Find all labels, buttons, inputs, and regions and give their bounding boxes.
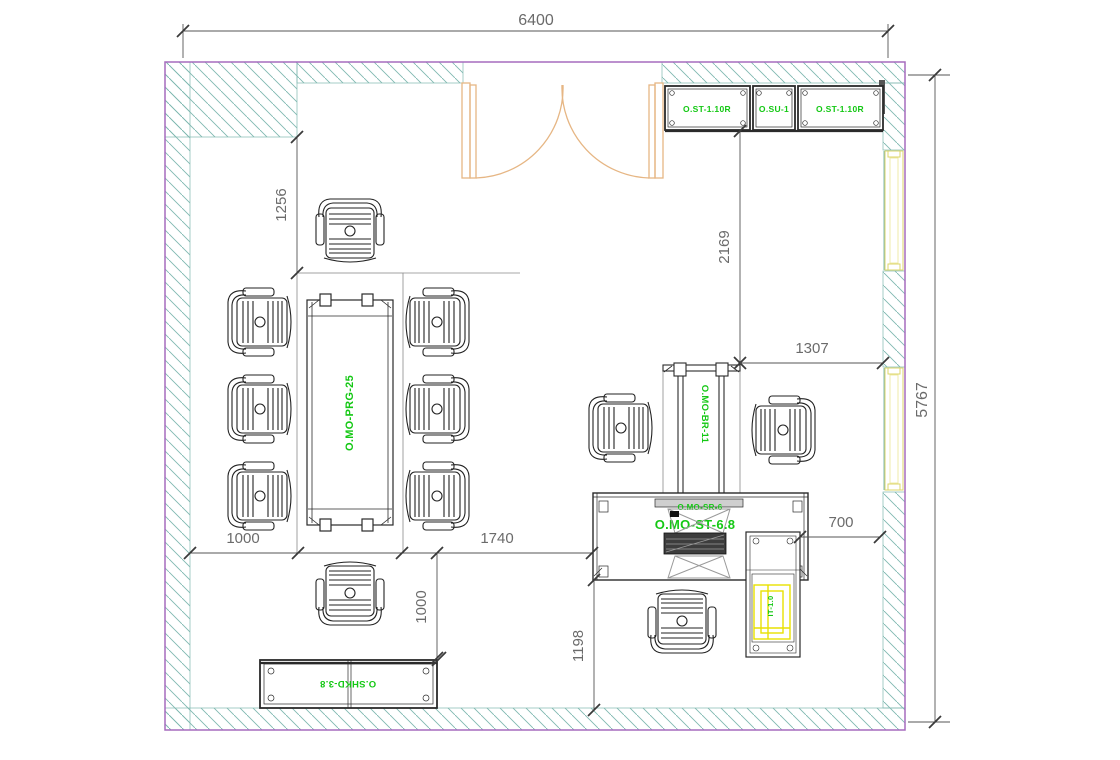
chair-icon bbox=[228, 375, 291, 443]
chair-icon bbox=[316, 199, 384, 262]
dimension-right-height: 5767 bbox=[908, 69, 950, 728]
meeting-table-zone: O.MO-BR-11 bbox=[589, 363, 815, 493]
chair-icon bbox=[406, 288, 469, 356]
dimension-desk-to-bottom: 1198 bbox=[570, 574, 600, 716]
wall-top-strip-right bbox=[662, 62, 905, 83]
door-leaf-right bbox=[649, 85, 655, 178]
dimension-center-vertical: 2169 bbox=[716, 125, 746, 369]
top-cabinets: O.ST-1.10R O.SU-1 O.ST-1.10R bbox=[665, 86, 883, 131]
pedestal: IT-1.0 bbox=[746, 532, 800, 657]
wall-top-left-block bbox=[165, 62, 297, 137]
conference-table-label: O.MO-PRG-25 bbox=[344, 375, 356, 451]
chair-icon bbox=[406, 375, 469, 443]
dim-cabinet-gap-value: 1000 bbox=[413, 590, 430, 623]
cabinet-right-label: O.ST-1.10R bbox=[816, 104, 864, 114]
wall-left bbox=[165, 62, 190, 730]
chair-icon bbox=[316, 562, 384, 625]
chair-icon bbox=[228, 462, 291, 530]
dimension-desk-to-wall: 1307 bbox=[740, 340, 889, 369]
wall-right-seg1 bbox=[883, 83, 905, 150]
double-door bbox=[462, 83, 663, 178]
it-unit-label: IT-1.0 bbox=[766, 596, 775, 617]
wall-right-seg2 bbox=[883, 271, 905, 367]
conference-zone: O.MO-PRG-25 bbox=[228, 199, 520, 625]
window-lower bbox=[884, 368, 903, 490]
wall-top-strip-left bbox=[297, 62, 463, 83]
floor-plan-canvas: O.ST-1.10R O.SU-1 O.ST-1.10R O.MO-PRG-25 bbox=[0, 0, 1120, 760]
dimension-top-width: 6400 bbox=[177, 12, 894, 58]
dim-desk-to-wall-value: 1307 bbox=[795, 340, 828, 357]
dim-top-width-value: 6400 bbox=[518, 12, 554, 29]
meeting-table-label: O.MO-BR-11 bbox=[699, 385, 710, 444]
dim-desk-to-bottom-value: 1198 bbox=[570, 630, 587, 662]
dim-chair-gap-value: 1000 bbox=[226, 530, 259, 547]
dim-left-gap-value: 1256 bbox=[273, 188, 290, 221]
door-jamb-right bbox=[655, 83, 663, 178]
monitor-base bbox=[670, 511, 679, 517]
desk-top-label: O.MO-SR-6 bbox=[678, 503, 723, 512]
dim-right-height-value: 5767 bbox=[914, 382, 931, 418]
window-upper bbox=[884, 151, 903, 270]
dimension-cabinet-gap: 1000 bbox=[413, 547, 443, 664]
door-jamb-left bbox=[462, 83, 470, 178]
floor-plan-svg: O.ST-1.10R O.SU-1 O.ST-1.10R O.MO-PRG-25 bbox=[0, 0, 1120, 760]
door-swing-left bbox=[476, 85, 563, 178]
cabinet-center-label: O.SU-1 bbox=[759, 104, 789, 114]
door-swing-right bbox=[562, 85, 649, 178]
keyboard-icon bbox=[664, 533, 726, 554]
dim-desk-to-right-value: 700 bbox=[828, 514, 853, 531]
storage-cabinet: O.SHKD-3.8 bbox=[260, 652, 446, 708]
chair-icon bbox=[589, 394, 652, 462]
wall-right-seg3 bbox=[883, 492, 905, 708]
dimension-chain-bottom: 1000 1740 bbox=[184, 530, 598, 559]
dimension-left-gap: 1256 bbox=[273, 131, 303, 279]
dim-table-to-desk-value: 1740 bbox=[480, 530, 513, 547]
door-leaf-left bbox=[470, 85, 476, 178]
dim-center-vertical-value: 2169 bbox=[716, 230, 733, 263]
chair-icon bbox=[648, 590, 716, 653]
storage-cabinet-label: O.SHKD-3.8 bbox=[320, 678, 376, 689]
chair-icon bbox=[406, 462, 469, 530]
cabinet-left-label: O.ST-1.10R bbox=[683, 104, 731, 114]
chair-icon bbox=[752, 396, 815, 464]
chair-icon bbox=[228, 288, 291, 356]
wall-bottom bbox=[165, 708, 905, 730]
